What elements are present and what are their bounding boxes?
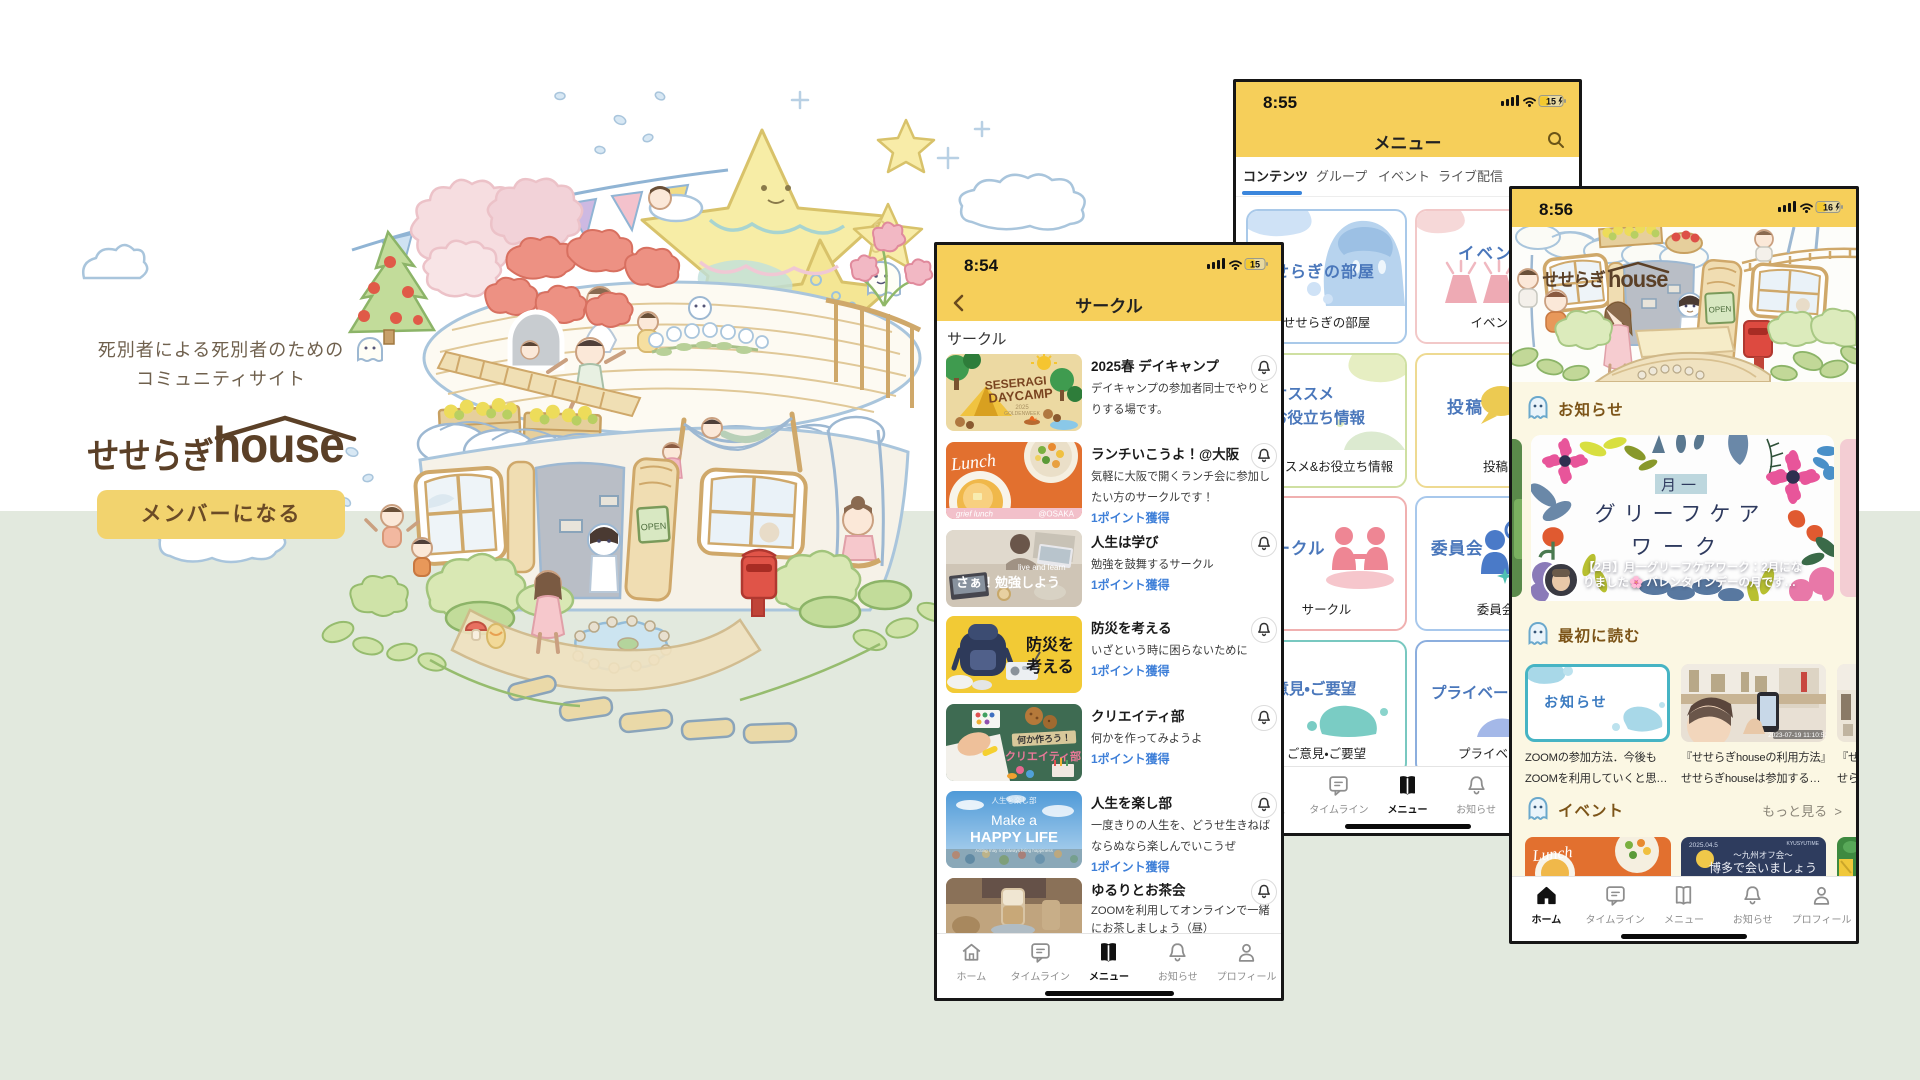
svg-text:2023-07-19 11:10:52: 2023-07-19 11:10:52 [1768, 732, 1826, 739]
svg-text:委員会: 委員会 [1430, 538, 1484, 558]
svg-text:GOLDENWEEK: GOLDENWEEK [1004, 411, 1041, 417]
svg-text:@OSAKA: @OSAKA [1038, 510, 1074, 519]
svg-text:live and learn: live and learn [1018, 563, 1066, 572]
svg-text:博多で会いましょう: 博多で会いましょう [1709, 860, 1817, 875]
svg-text:16: 16 [1823, 203, 1833, 213]
svg-text:Make a: Make a [991, 812, 1037, 828]
svg-text:お役立ち情報: お役立ち情報 [1272, 408, 1366, 427]
svg-text:OPEN: OPEN [1708, 304, 1731, 314]
svg-text:さぁ！勉強しよう: さぁ！勉強しよう [956, 575, 1060, 590]
svg-text:考える: 考える [1025, 657, 1074, 676]
svg-text:人生を楽し部: 人生を楽し部 [992, 795, 1037, 805]
svg-text:KYUSYUTIME: KYUSYUTIME [1786, 841, 1819, 847]
svg-text:投稿: 投稿 [1447, 397, 1484, 417]
svg-text:グリーフケア: グリーフケア [1595, 502, 1768, 526]
svg-text:月一: 月一 [1661, 478, 1701, 494]
svg-text:お知らせ: お知らせ [1544, 694, 1608, 710]
svg-text:～九州オフ会～: ～九州オフ会～ [1733, 850, 1793, 860]
svg-text:Acting may not always bring ha: Acting may not always bring happiness [975, 848, 1054, 853]
svg-text:HAPPY LIFE: HAPPY LIFE [970, 829, 1058, 846]
svg-text:せせらぎ: せせらぎ [1542, 269, 1605, 290]
svg-text:防災を: 防災を [1026, 635, 1074, 654]
svg-text:OPEN: OPEN [640, 521, 666, 533]
svg-text:grief lunch: grief lunch [956, 510, 993, 519]
svg-text:ワーク: ワーク [1631, 535, 1727, 559]
svg-text:クリエイティ部: クリエイティ部 [1005, 749, 1081, 763]
svg-text:15: 15 [1546, 97, 1556, 107]
svg-text:2025.04.5: 2025.04.5 [1689, 842, 1718, 849]
